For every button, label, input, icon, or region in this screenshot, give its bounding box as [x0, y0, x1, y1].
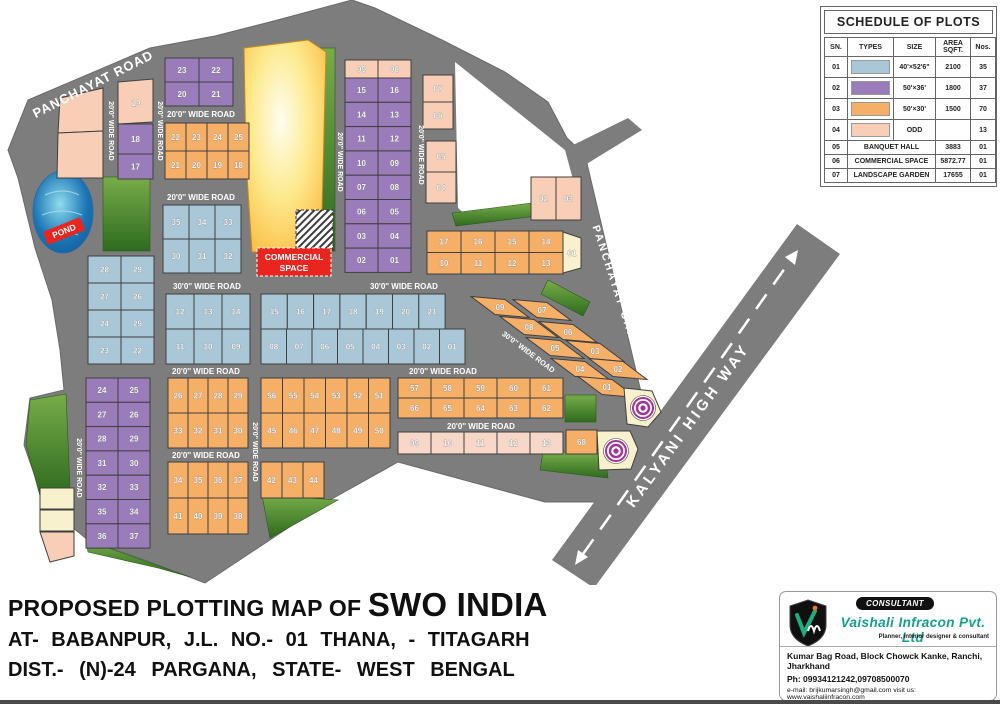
plot-number: 49: [353, 426, 362, 435]
plot-number: 19: [213, 161, 222, 170]
plot-number: 08: [390, 183, 399, 192]
plot: 01: [440, 329, 466, 364]
plot-number: 55: [289, 391, 298, 400]
plot-number: 13: [390, 110, 399, 119]
plot: 32: [188, 413, 208, 448]
plot-number: 32: [98, 483, 107, 492]
title-prefix: PROPOSED PLOTTING MAP OF: [8, 595, 361, 621]
plot-number: 11: [476, 439, 485, 448]
plot: 63: [497, 398, 530, 418]
plot: 31: [86, 451, 118, 475]
schedule-table: SN.TYPESSIZEAREA SQFT.Nos.0140'×52'6"210…: [824, 37, 996, 183]
plot-number: 10: [440, 259, 449, 268]
plot-number: 25: [234, 133, 243, 142]
plot: 10: [431, 432, 464, 454]
plot-number: 31: [98, 459, 107, 468]
plot-number: 07: [538, 306, 547, 315]
plot: [40, 532, 74, 562]
plot: 32: [86, 475, 118, 499]
plot-number: 39: [214, 512, 223, 521]
road-label: 20'0'' WIDE ROAD: [156, 101, 163, 160]
plot: 38: [228, 498, 248, 534]
plot-number: 02: [422, 342, 431, 351]
plot-number: 65: [443, 404, 452, 413]
page: COMMERCIAL SPACE POND 232220212223242521…: [0, 0, 1000, 704]
plot-number: 04: [437, 183, 446, 192]
plot: 03: [556, 177, 581, 220]
plot: 18: [340, 294, 366, 329]
plot-number: 21: [171, 161, 180, 170]
plot-number: 17: [322, 307, 331, 316]
road-label: 20'0'' WIDE ROAD: [107, 101, 114, 160]
road-label: 30'0'' WIDE ROAD: [370, 282, 438, 291]
commercial-space-label: COMMERCIAL SPACE: [257, 248, 331, 276]
plot-number: 29: [130, 435, 139, 444]
plot: 06: [312, 329, 338, 364]
plot-number: 09: [496, 303, 505, 312]
plot: 09: [345, 60, 378, 78]
plot-number: 20: [178, 90, 187, 99]
plot: 28: [208, 378, 228, 413]
plot-number: 25: [130, 386, 139, 395]
circle-marker-icon: [604, 439, 629, 464]
plot-number: 02: [539, 194, 548, 203]
commercial-space-hatch: [296, 210, 333, 250]
plot: 24: [86, 378, 118, 402]
plot-number: 68: [577, 438, 586, 447]
plot: 07: [287, 329, 313, 364]
plot: 40: [188, 498, 208, 534]
location-line: AT- BABANPUR, J.L. NO.- 01 THANA, - TITA…: [8, 629, 773, 652]
plot: 09: [378, 151, 411, 175]
plot-number: 50: [375, 426, 384, 435]
plot-number: 57: [410, 384, 419, 393]
plot-number: 34: [130, 507, 139, 516]
road-label: 20'0'' WIDE ROAD: [409, 367, 477, 376]
schedule-header: Nos.: [971, 38, 996, 57]
plot: 18: [118, 124, 153, 154]
plot-number: 61: [542, 384, 551, 393]
plot-number: 29: [234, 391, 243, 400]
plot: 58: [431, 378, 464, 398]
plot-number: 03: [357, 232, 366, 241]
plot-number: 26: [130, 410, 139, 419]
project-name: SWO INDIA: [368, 586, 548, 623]
plot-number: 18: [349, 307, 358, 316]
commercial-space-line1: COMMERCIAL: [265, 252, 324, 262]
plot-number: 64: [476, 404, 485, 413]
plot-number: 17: [440, 238, 449, 247]
plot: 30: [118, 451, 150, 475]
plot: 56: [261, 378, 283, 413]
plot: 12: [166, 294, 194, 329]
plot: 12: [495, 253, 529, 275]
plot: 27: [88, 283, 121, 310]
plot: 66: [398, 398, 431, 418]
plot-number: 04: [576, 365, 585, 374]
plot: 23: [88, 337, 121, 364]
plot: 02: [414, 329, 440, 364]
consultant-phone: Ph: 09934121242,09708500070: [787, 674, 989, 684]
plot: 03: [345, 224, 378, 248]
plot-number: 33: [130, 483, 139, 492]
plot: 14: [222, 294, 250, 329]
plot-number: 16: [474, 238, 483, 247]
plot: 27: [188, 378, 208, 413]
schedule-of-plots: SCHEDULE OF PLOTS SN.TYPESSIZEAREA SQFT.…: [820, 6, 997, 187]
road-label: 20'0'' WIDE ROAD: [251, 422, 258, 481]
plot: 17: [314, 294, 340, 329]
plot: 43: [282, 462, 303, 498]
plot-number: 34: [174, 476, 183, 485]
pond: POND: [33, 171, 93, 253]
plot-number: 19: [375, 307, 384, 316]
plot-number: 15: [270, 307, 279, 316]
plot-number: 03: [564, 194, 573, 203]
plot-number: 13: [204, 307, 213, 316]
plot: 33: [215, 205, 241, 239]
plot: 16: [461, 231, 495, 253]
plot-number: 23: [100, 346, 109, 355]
plot: 11: [461, 253, 495, 275]
plot-number: 18: [131, 135, 140, 144]
plot-number: 43: [288, 476, 297, 485]
plot-number: 51: [375, 391, 384, 400]
plot: 03: [389, 329, 415, 364]
plot-number: 18: [234, 161, 243, 170]
plot-number: 09: [410, 439, 419, 448]
plot-number: 37: [234, 476, 243, 485]
plot: 07: [345, 175, 378, 199]
plot: 04: [378, 224, 411, 248]
plot-number: 21: [427, 307, 436, 316]
plot-number: 23: [178, 66, 187, 75]
plot-number: 35: [194, 476, 203, 485]
plot: 45: [261, 413, 283, 448]
consultant-email: e-mail: brijkumarsingh@gmail.com visit u…: [787, 687, 989, 701]
plot-number: 28: [98, 435, 107, 444]
plot: 27: [86, 402, 118, 426]
plot: 11: [464, 432, 497, 454]
plot: 13: [530, 432, 563, 454]
schedule-row: 06COMMERCIAL SPACE5872.7701: [825, 155, 996, 169]
plot: 02: [345, 248, 378, 272]
plot-number: 30: [172, 252, 181, 261]
plot-number: 28: [214, 391, 223, 400]
plot-number: 27: [98, 410, 107, 419]
plot-number: 14: [357, 110, 366, 119]
plot: 29: [121, 256, 154, 283]
plot: 20: [165, 82, 199, 106]
plot: 08: [261, 329, 287, 364]
consultant-logo-icon: [788, 599, 828, 647]
type-color-swatch: [851, 81, 890, 95]
plot: 20: [186, 151, 207, 179]
plot-number: 22: [212, 66, 221, 75]
plot: 01: [378, 248, 411, 272]
plot-number: 53: [332, 391, 341, 400]
plot-number: 20: [401, 307, 410, 316]
schedule-row: 0140'×52'6"210035: [825, 57, 996, 78]
plot: 08: [378, 175, 411, 199]
plot: 54: [304, 378, 326, 413]
plot: 20: [393, 294, 419, 329]
plot: 09: [222, 329, 250, 364]
plot: 30: [163, 239, 189, 273]
plot: 19: [207, 151, 228, 179]
plot: 08: [378, 60, 411, 78]
plot-number: 41: [174, 512, 183, 521]
plot-number: 32: [224, 252, 233, 261]
plot-number: 52: [353, 391, 362, 400]
plot-number: 08: [525, 323, 534, 332]
plot: 13: [194, 294, 222, 329]
plot-number: 25: [133, 319, 142, 328]
plot-number: 09: [357, 65, 366, 74]
plot-number: 37: [130, 532, 139, 541]
plot: 36: [208, 462, 228, 498]
title-block: PROPOSED PLOTTING MAP OF SWO INDIA AT- B…: [8, 586, 773, 682]
plot: 21: [165, 151, 186, 179]
plot-number: 12: [509, 439, 518, 448]
plot: 47: [304, 413, 326, 448]
plot: 16: [378, 78, 411, 102]
plot: 22: [121, 337, 154, 364]
plot: 44: [303, 462, 324, 498]
plot-number: 13: [542, 259, 551, 268]
plot: 16: [287, 294, 313, 329]
plot-number: 16: [296, 307, 305, 316]
plot-number: 06: [434, 111, 443, 120]
plot: 30: [228, 413, 248, 448]
plot: 19: [366, 294, 392, 329]
plot-number: 08: [390, 65, 399, 74]
road-label: 20'0'' WIDE ROAD: [447, 422, 515, 431]
plot-number: 14: [232, 307, 241, 316]
plot: 68: [566, 430, 597, 454]
plot: 36: [86, 524, 118, 548]
plot-number: 29: [133, 265, 142, 274]
district-line: DIST.- (N)-24 PARGANA, STATE- WEST BENGA…: [8, 659, 773, 682]
plot-number: 33: [174, 426, 183, 435]
plot: 04: [363, 329, 389, 364]
plot: 39: [208, 498, 228, 534]
plot-number: 09: [232, 342, 241, 351]
consultant-company: Vaishali Infracon Pvt. Ltd: [832, 615, 994, 645]
type-color-swatch: [851, 123, 890, 137]
plot-number: 31: [214, 426, 223, 435]
plot: 34: [168, 462, 188, 498]
road-label: 20'0'' WIDE ROAD: [172, 451, 240, 460]
plot-number: 05: [346, 342, 355, 351]
plot-number: 07: [295, 342, 304, 351]
plot: 55: [283, 378, 305, 413]
plot: 35: [188, 462, 208, 498]
plot-number: 54: [310, 391, 319, 400]
road-label: 20'0'' WIDE ROAD: [172, 367, 240, 376]
road-label: 30'0'' WIDE ROAD: [173, 282, 241, 291]
plot-number: 15: [357, 86, 366, 95]
schedule-header: SN.: [825, 38, 848, 57]
plot-number: 36: [98, 532, 107, 541]
plot-number: 59: [476, 384, 485, 393]
plot-number: 27: [100, 292, 109, 301]
plot: 42: [261, 462, 282, 498]
canal-stub: [563, 118, 642, 168]
plot-number: 10: [204, 342, 213, 351]
plot-number: 06: [320, 342, 329, 351]
plot-number: 04: [371, 342, 380, 351]
plot: 59: [464, 378, 497, 398]
plot-number: 12: [176, 307, 185, 316]
plot: 07: [423, 75, 453, 102]
plot: 23: [165, 58, 199, 82]
plot-number: 56: [267, 391, 276, 400]
plot: [40, 510, 74, 531]
plot-number: 31: [198, 252, 207, 261]
plot: 32: [215, 239, 241, 273]
plot: 21: [419, 294, 445, 329]
schedule-title: SCHEDULE OF PLOTS: [824, 10, 993, 34]
plot: 13: [378, 102, 411, 126]
plot: 24: [207, 123, 228, 151]
plot-number: 40: [194, 512, 203, 521]
plot: 06: [423, 102, 453, 129]
plot: 23: [186, 123, 207, 151]
plot: 29: [228, 378, 248, 413]
plot-number: 47: [310, 426, 319, 435]
plot-number: 11: [474, 259, 483, 268]
plot: 26: [121, 283, 154, 310]
plot-number: 09: [390, 159, 399, 168]
plot-number: 10: [443, 439, 452, 448]
plot-number: 12: [508, 259, 517, 268]
plot: 12: [497, 432, 530, 454]
plot-number: 15: [508, 238, 517, 247]
plot-number: 12: [390, 135, 399, 144]
plot: 62: [530, 398, 563, 418]
plot-number: 32: [194, 426, 203, 435]
plot: 14: [529, 231, 563, 253]
plot: 17: [118, 154, 153, 179]
plot: 18: [228, 151, 249, 179]
plot: 61: [530, 378, 563, 398]
plot: 19: [118, 79, 153, 124]
plot-number: 06: [357, 207, 366, 216]
plot: 09: [398, 432, 431, 454]
plot: 37: [228, 462, 248, 498]
plot: 05: [378, 200, 411, 224]
type-color-swatch: [851, 60, 890, 74]
plot-number: 21: [212, 90, 221, 99]
plot-number: 66: [410, 404, 419, 413]
plot: 12: [378, 127, 411, 151]
plot-number: 14: [542, 238, 551, 247]
plot-number: 01: [390, 256, 399, 265]
consultant-card: CONSULTANT Vaishali Infracon Pvt. Ltd Pl…: [779, 591, 997, 701]
plot: 15: [261, 294, 287, 329]
consultant-tagline: Planner, interior designer & consultant: [879, 634, 989, 640]
plot: 41: [168, 498, 188, 534]
plot-number: 01: [568, 249, 577, 258]
plot-number: 35: [172, 218, 181, 227]
plot: 22: [199, 58, 233, 82]
plot: 17: [427, 231, 461, 253]
plot-number: 38: [234, 512, 243, 521]
plot: 34: [118, 500, 150, 524]
plot: 35: [163, 205, 189, 239]
plot: 50: [369, 413, 391, 448]
plot-number: 33: [224, 218, 233, 227]
schedule-row: 07LANDSCAPE GARDEN1765501: [825, 169, 996, 183]
plot-number: 22: [171, 133, 180, 142]
plot-number: 02: [357, 256, 366, 265]
plot: 01: [563, 232, 581, 273]
plot: 26: [168, 378, 188, 413]
map-title: PROPOSED PLOTTING MAP OF SWO INDIA: [8, 586, 773, 624]
plot-number: 48: [332, 426, 341, 435]
plot-number: 45: [267, 426, 276, 435]
plot-number: 07: [434, 84, 443, 93]
road-label: 20'0'' WIDE ROAD: [336, 132, 343, 191]
plot: 05: [426, 141, 456, 172]
plot: 05: [338, 329, 364, 364]
plot-number: 19: [132, 99, 141, 108]
plot: 10: [345, 151, 378, 175]
plot: 06: [345, 200, 378, 224]
plot-number: 62: [542, 404, 551, 413]
plot-number: 22: [133, 346, 142, 355]
plot: 10: [427, 253, 461, 275]
consultant-badge: CONSULTANT: [856, 597, 934, 610]
plot: 13: [529, 253, 563, 275]
plot-number: 58: [443, 384, 452, 393]
schedule-header: TYPES: [848, 38, 894, 57]
road-label: 20'0'' WIDE ROAD: [167, 193, 235, 202]
commercial-space-line2: SPACE: [280, 263, 309, 273]
plot-number: 06: [564, 328, 573, 337]
plot: 25: [228, 123, 249, 151]
plot-number: 46: [289, 426, 298, 435]
plot-number: 20: [192, 161, 201, 170]
consultant-contact: Kumar Bag Road, Block Chowck Kanke, Ranc…: [780, 646, 996, 704]
plot-number: 01: [603, 383, 612, 392]
plot: 04: [426, 172, 456, 203]
plot-number: 01: [448, 342, 457, 351]
circle-marker-icon: [631, 396, 656, 421]
plot: [40, 488, 74, 509]
plot: 64: [464, 398, 497, 418]
plot-number: 24: [100, 319, 109, 328]
plot-number: 24: [213, 133, 222, 142]
plot-number: 27: [194, 391, 203, 400]
road-label: 20'0'' WIDE ROAD: [75, 438, 82, 497]
plot-number: 04: [390, 232, 399, 241]
plot-number: 44: [309, 476, 318, 485]
plot-number: 13: [542, 439, 551, 448]
plot: 48: [326, 413, 348, 448]
plot: 15: [495, 231, 529, 253]
plot: 28: [88, 256, 121, 283]
plot-number: 10: [357, 159, 366, 168]
plot: 33: [168, 413, 188, 448]
road-label: 20'0'' WIDE ROAD: [167, 110, 235, 119]
plot: 11: [166, 329, 194, 364]
road-label: 20'0'' WIDE ROAD: [417, 125, 424, 184]
plot-number: 30: [234, 426, 243, 435]
plot: 34: [189, 205, 215, 239]
plot-number: 26: [174, 391, 183, 400]
